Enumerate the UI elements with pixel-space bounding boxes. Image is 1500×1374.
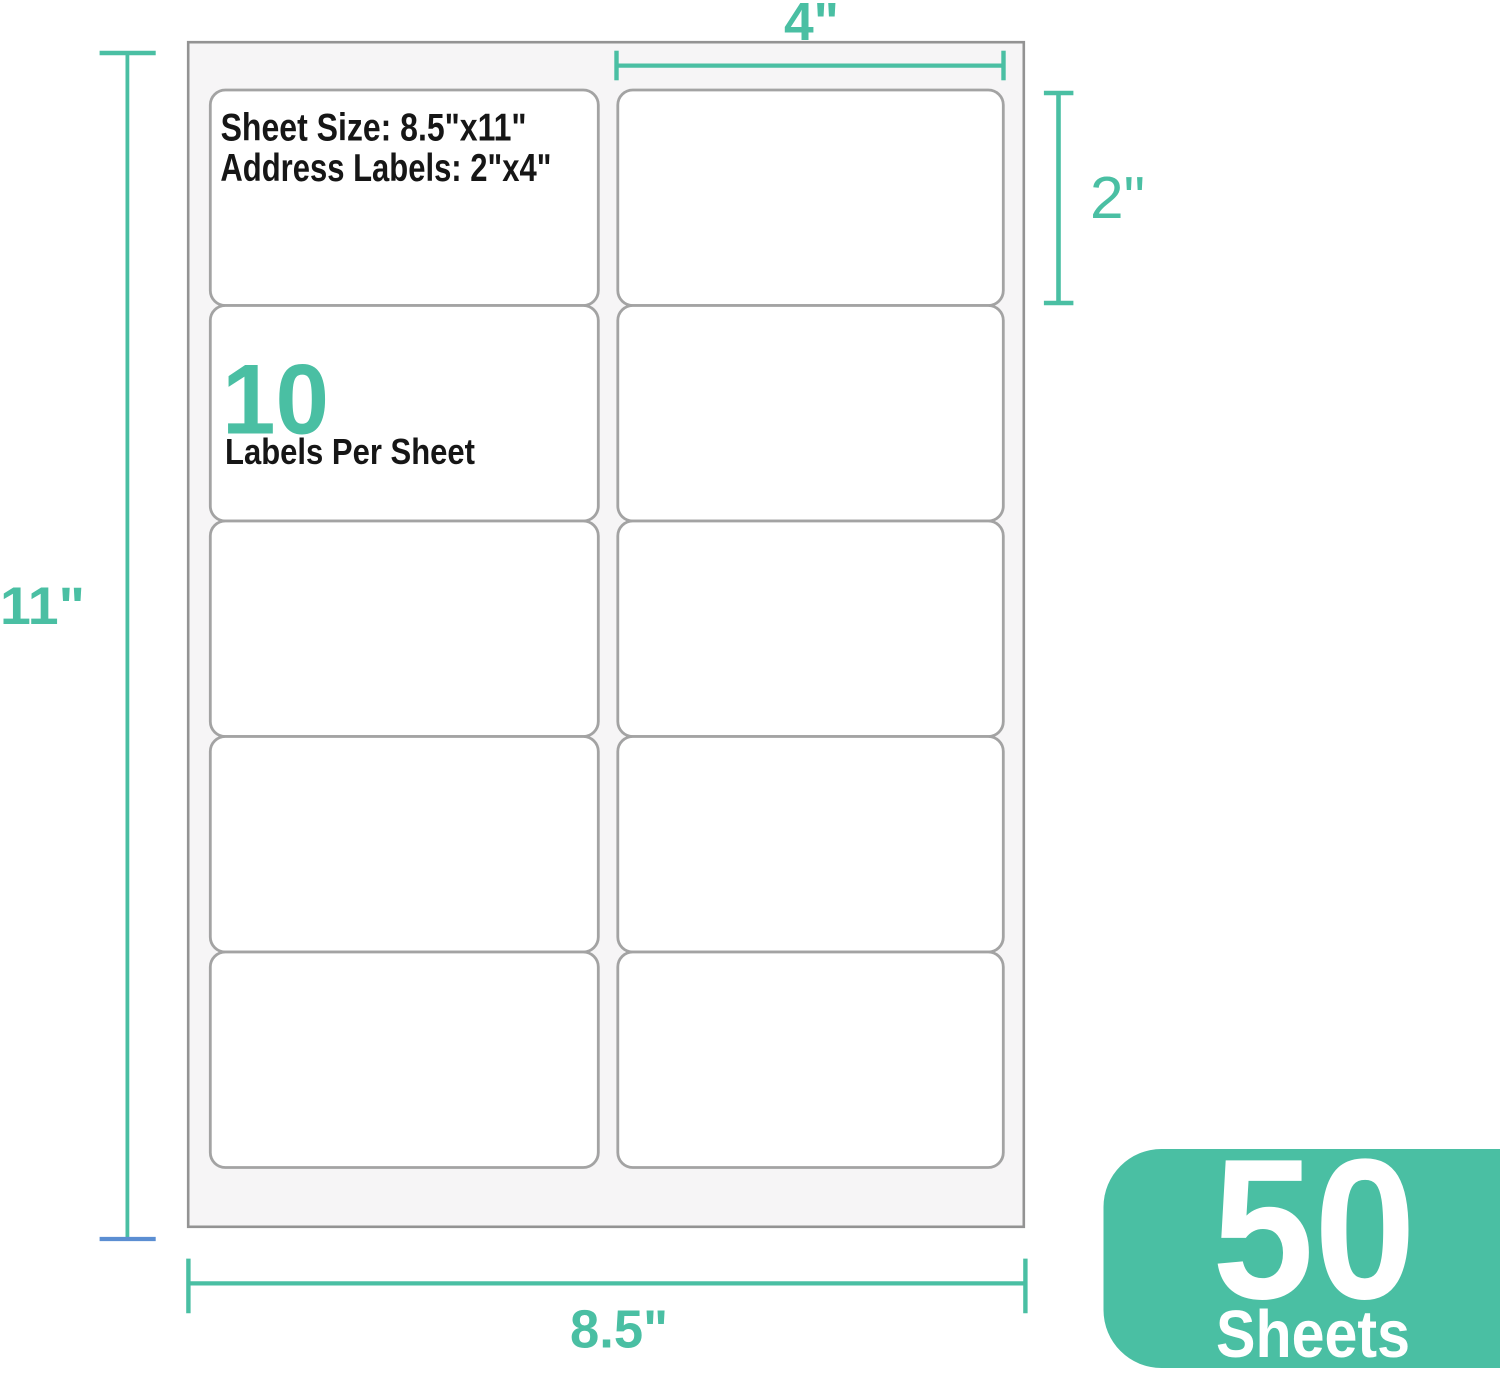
svg-text:Sheet Size: 8.5"x11": Sheet Size: 8.5"x11" [221, 106, 527, 149]
svg-text:Sheets: Sheets [1216, 1297, 1410, 1372]
svg-text:Address Labels: 2"x4": Address Labels: 2"x4" [220, 147, 551, 190]
svg-text:8.5": 8.5" [570, 1301, 668, 1360]
svg-text:Labels Per Sheet: Labels Per Sheet [225, 431, 475, 472]
svg-text:4": 4" [784, 0, 839, 52]
svg-text:11": 11" [0, 577, 85, 636]
svg-text:2": 2" [1090, 164, 1145, 231]
